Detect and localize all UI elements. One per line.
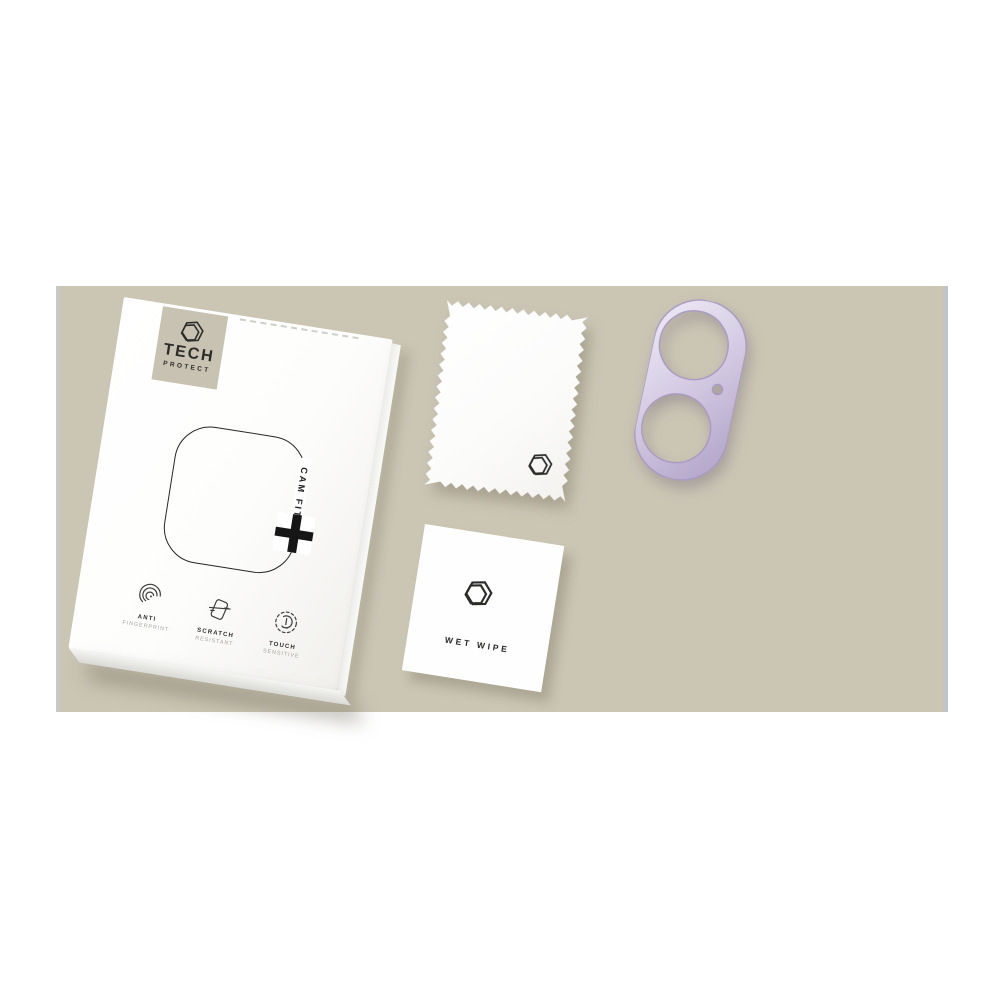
hexagon-logo-icon bbox=[178, 317, 208, 346]
hexagon-logo-icon bbox=[462, 576, 496, 610]
brand-badge: TECH PROTECT bbox=[151, 306, 228, 389]
protector-plate bbox=[626, 291, 755, 488]
product-box: TECH PROTECT CAM FIT ANTI FINGER bbox=[68, 297, 392, 690]
wet-wipe-label: WET WIPE bbox=[407, 629, 548, 661]
fingerprint-icon bbox=[136, 580, 166, 610]
photo-area: TECH PROTECT CAM FIT ANTI FINGER bbox=[56, 286, 948, 712]
wet-wipe-packet: WET WIPE bbox=[402, 524, 564, 692]
camera-protector bbox=[626, 291, 755, 488]
scratch-icon bbox=[204, 595, 234, 625]
plus-icon bbox=[272, 512, 315, 555]
hexagon-logo-icon bbox=[526, 450, 555, 479]
cloth-body bbox=[424, 300, 588, 502]
camera-module-outline bbox=[159, 421, 311, 578]
cleaning-cloth bbox=[424, 300, 588, 502]
product-photo-scene: TECH PROTECT CAM FIT ANTI FINGER bbox=[0, 0, 1000, 1000]
touch-icon bbox=[271, 607, 301, 637]
